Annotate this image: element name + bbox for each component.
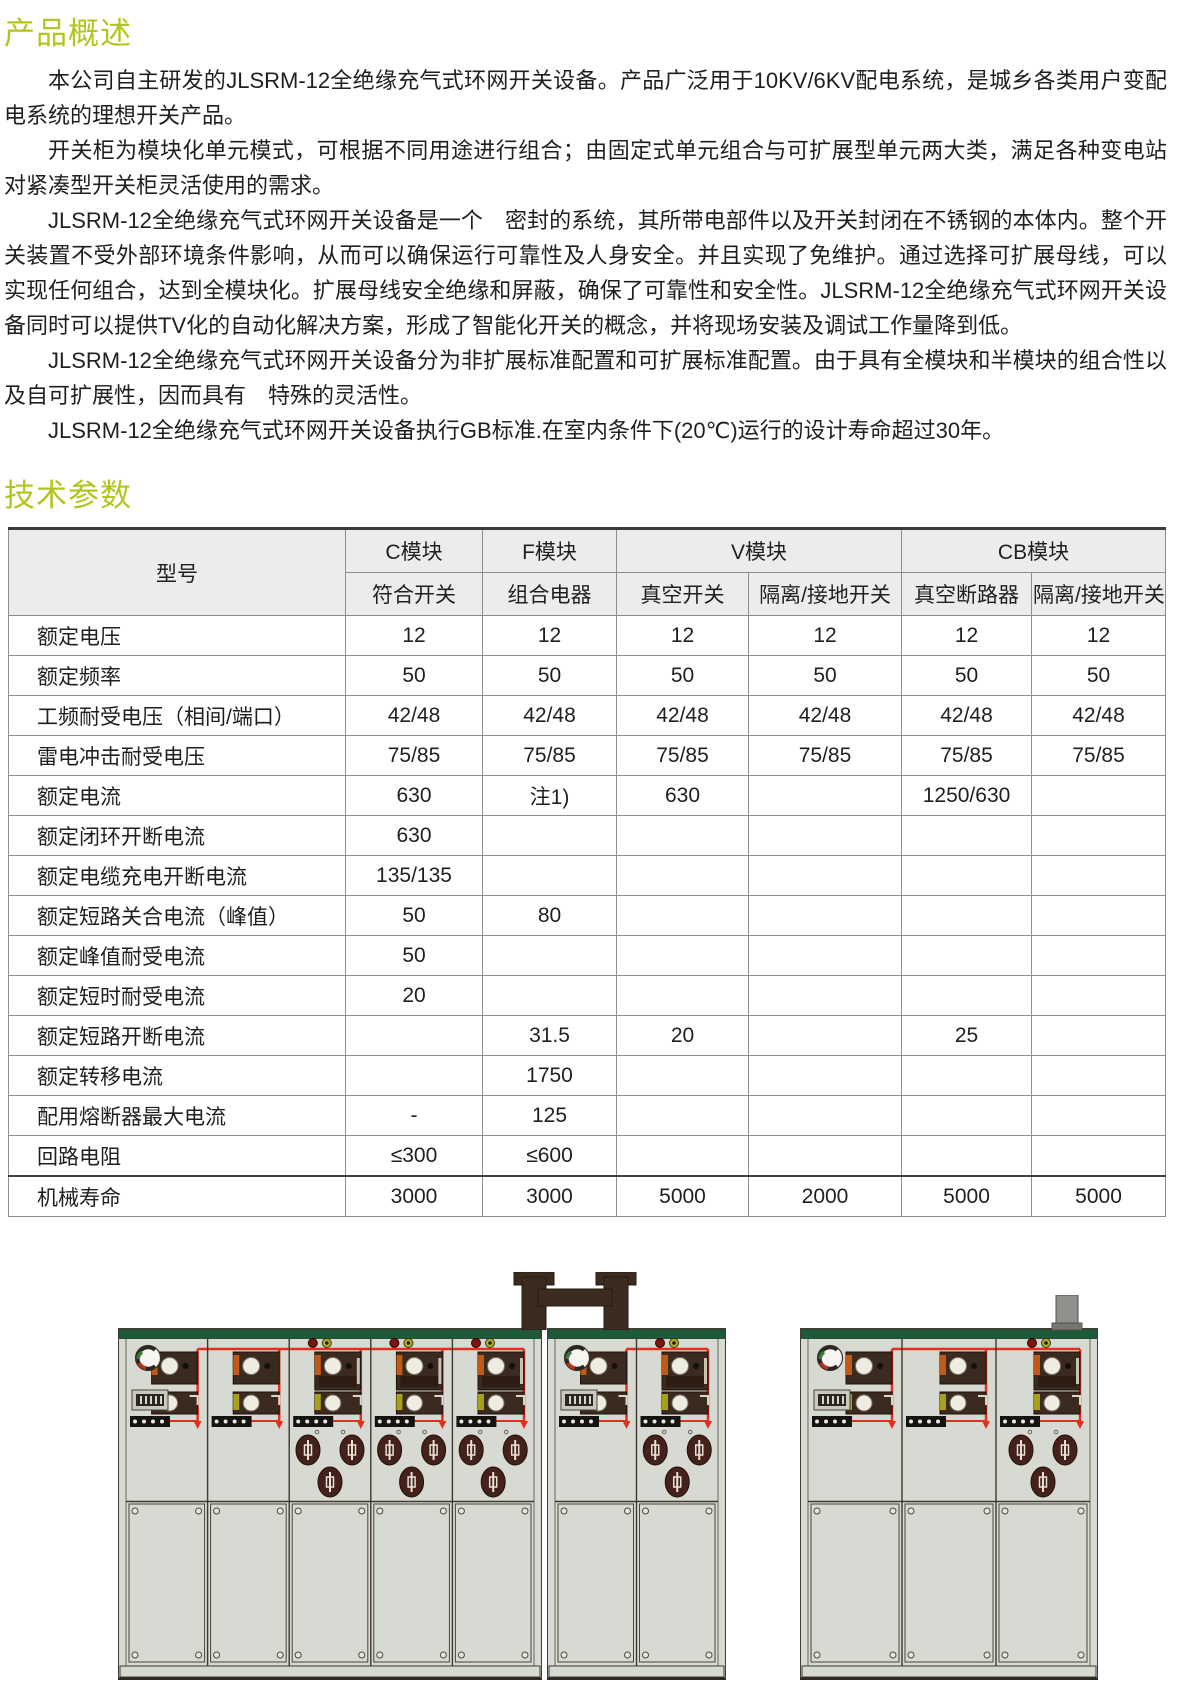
row-value: 50 (902, 656, 1032, 696)
row-label: 机械寿命 (9, 1176, 346, 1217)
row-value: 42/48 (483, 696, 617, 736)
col-subheader: 真空开关 (617, 573, 749, 616)
overview-paragraph: 本公司自主研发的JLSRM-12全绝缘充气式环网开关设备。产品广泛用于10KV/… (4, 63, 1167, 133)
row-value (1032, 1056, 1166, 1096)
params-table-head: 型号 C模块 F模块 V模块 CB模块 符合开关 组合电器 真空开关 隔离/接地… (9, 529, 1166, 616)
row-value: 25 (902, 1016, 1032, 1056)
table-row: 额定电流630注1)6301250/630 (9, 776, 1166, 816)
row-value: 630 (346, 776, 483, 816)
row-value (902, 936, 1032, 976)
row-value (749, 896, 902, 936)
col-header-model: 型号 (9, 529, 346, 616)
row-value: 3000 (346, 1176, 483, 1217)
row-value: 75/85 (902, 736, 1032, 776)
params-table-body: 额定电压121212121212额定频率505050505050工频耐受电压（相… (9, 616, 1166, 1217)
overview-title: 产品概述 (4, 8, 1200, 53)
row-value (483, 856, 617, 896)
row-label: 额定短路开断电流 (9, 1016, 346, 1056)
table-row: 额定短路关合电流（峰值）5080 (9, 896, 1166, 936)
params-title: 技术参数 (4, 470, 1200, 515)
row-value (749, 1096, 902, 1136)
row-value (1032, 1096, 1166, 1136)
row-value (1032, 856, 1166, 896)
col-subheader: 真空断路器 (902, 573, 1032, 616)
row-value (902, 976, 1032, 1016)
row-value: 630 (617, 776, 749, 816)
row-label: 额定闭环开断电流 (9, 816, 346, 856)
row-value: 12 (749, 616, 902, 656)
row-value: 5000 (617, 1176, 749, 1217)
row-value: 12 (483, 616, 617, 656)
row-value: 75/85 (617, 736, 749, 776)
row-value (1032, 936, 1166, 976)
row-value: ≤300 (346, 1136, 483, 1177)
cable-duct (1050, 1295, 1084, 1331)
row-value (749, 1056, 902, 1096)
table-row: 额定频率505050505050 (9, 656, 1166, 696)
row-value (902, 1136, 1032, 1177)
overview-text: 本公司自主研发的JLSRM-12全绝缘充气式环网开关设备。产品广泛用于10KV/… (4, 63, 1167, 448)
col-subheader: 组合电器 (483, 573, 617, 616)
row-value (617, 976, 749, 1016)
row-value: 1250/630 (902, 776, 1032, 816)
row-value (617, 1096, 749, 1136)
row-value (1032, 776, 1166, 816)
row-value (1032, 1016, 1166, 1056)
row-value: 75/85 (483, 736, 617, 776)
table-row: 配用熔断器最大电流-125 (9, 1096, 1166, 1136)
table-row: 额定转移电流1750 (9, 1056, 1166, 1096)
product-figure (0, 1229, 1200, 1701)
col-header-v-module: V模块 (617, 529, 902, 573)
row-value (346, 1056, 483, 1096)
col-header-c-module: C模块 (346, 529, 483, 573)
row-value (749, 776, 902, 816)
table-row: 额定电压121212121212 (9, 616, 1166, 656)
row-value: - (346, 1096, 483, 1136)
table-row: 额定电缆充电开断电流135/135 (9, 856, 1166, 896)
row-value: 12 (902, 616, 1032, 656)
row-value (749, 1136, 902, 1177)
row-value: 42/48 (1032, 696, 1166, 736)
row-value: 12 (1032, 616, 1166, 656)
row-value: 50 (346, 656, 483, 696)
row-label: 配用熔断器最大电流 (9, 1096, 346, 1136)
row-value (902, 1096, 1032, 1136)
overview-paragraph: JLSRM-12全绝缘充气式环网开关设备执行GB标准.在室内条件下(20℃)运行… (4, 413, 1167, 448)
row-value: 42/48 (346, 696, 483, 736)
row-label: 额定电压 (9, 616, 346, 656)
row-value (617, 936, 749, 976)
row-value (749, 856, 902, 896)
row-value (617, 1056, 749, 1096)
table-row: 回路电阻≤300≤600 (9, 1136, 1166, 1177)
row-label: 额定峰值耐受电流 (9, 936, 346, 976)
col-subheader: 符合开关 (346, 573, 483, 616)
row-label: 额定转移电流 (9, 1056, 346, 1096)
row-value: 50 (483, 656, 617, 696)
table-row: 额定短时耐受电流20 (9, 976, 1166, 1016)
row-value: 630 (346, 816, 483, 856)
col-header-cb-module: CB模块 (902, 529, 1166, 573)
row-value: 1750 (483, 1056, 617, 1096)
row-value (902, 896, 1032, 936)
row-value: 42/48 (902, 696, 1032, 736)
row-value: 2000 (749, 1176, 902, 1217)
table-row: 工频耐受电压（相间/端口）42/4842/4842/4842/4842/4842… (9, 696, 1166, 736)
row-value (346, 1016, 483, 1056)
col-subheader: 隔离/接地开关 (749, 573, 902, 616)
row-value: 5000 (902, 1176, 1032, 1217)
row-value: 50 (1032, 656, 1166, 696)
row-value (617, 1136, 749, 1177)
col-subheader: 隔离/接地开关 (1032, 573, 1166, 616)
product-page: 产品概述 本公司自主研发的JLSRM-12全绝缘充气式环网开关设备。产品广泛用于… (0, 8, 1200, 1613)
row-value: 31.5 (483, 1016, 617, 1056)
col-header-f-module: F模块 (483, 529, 617, 573)
row-value (1032, 816, 1166, 856)
row-label: 额定频率 (9, 656, 346, 696)
row-value (749, 976, 902, 1016)
row-value: ≤600 (483, 1136, 617, 1177)
row-value: 5000 (1032, 1176, 1166, 1217)
row-value: 50 (346, 936, 483, 976)
busbar-bridge (512, 1272, 638, 1330)
row-label: 额定电流 (9, 776, 346, 816)
row-value: 50 (346, 896, 483, 936)
row-value: 20 (346, 976, 483, 1016)
overview-paragraph: JLSRM-12全绝缘充气式环网开关设备分为非扩展标准配置和可扩展标准配置。由于… (4, 343, 1167, 413)
row-value (902, 856, 1032, 896)
table-row: 额定峰值耐受电流50 (9, 936, 1166, 976)
table-row: 额定闭环开断电流630 (9, 816, 1166, 856)
row-value (749, 1016, 902, 1056)
row-label: 额定电缆充电开断电流 (9, 856, 346, 896)
row-value (617, 856, 749, 896)
row-value: 75/85 (1032, 736, 1166, 776)
switchgear-cabinet (800, 1328, 1098, 1680)
row-value: 50 (749, 656, 902, 696)
row-value: 注1) (483, 776, 617, 816)
row-value (749, 936, 902, 976)
params-table: 型号 C模块 F模块 V模块 CB模块 符合开关 组合电器 真空开关 隔离/接地… (8, 527, 1166, 1217)
row-value (617, 816, 749, 856)
table-row: 机械寿命300030005000200050005000 (9, 1176, 1166, 1217)
row-label: 额定短路关合电流（峰值） (9, 896, 346, 936)
row-value (902, 816, 1032, 856)
table-row: 雷电冲击耐受电压75/8575/8575/8575/8575/8575/85 (9, 736, 1166, 776)
row-value: 75/85 (749, 736, 902, 776)
row-value: 20 (617, 1016, 749, 1056)
switchgear-cabinet (118, 1328, 542, 1680)
row-value (902, 1056, 1032, 1096)
row-value: 12 (617, 616, 749, 656)
row-value (483, 976, 617, 1016)
table-row: 额定短路开断电流31.52025 (9, 1016, 1166, 1056)
row-label: 回路电阻 (9, 1136, 346, 1177)
row-value (1032, 896, 1166, 936)
overview-paragraph: JLSRM-12全绝缘充气式环网开关设备是一个 密封的系统，其所带电部件以及开关… (4, 203, 1167, 343)
row-value (749, 816, 902, 856)
row-value: 80 (483, 896, 617, 936)
row-value: 3000 (483, 1176, 617, 1217)
row-value (1032, 1136, 1166, 1177)
overview-paragraph: 开关柜为模块化单元模式，可根据不同用途进行组合；由固定式单元组合与可扩展型单元两… (4, 133, 1167, 203)
row-value (1032, 976, 1166, 1016)
row-value: 42/48 (617, 696, 749, 736)
row-value: 42/48 (749, 696, 902, 736)
row-label: 工频耐受电压（相间/端口） (9, 696, 346, 736)
row-label: 雷电冲击耐受电压 (9, 736, 346, 776)
row-value: 125 (483, 1096, 617, 1136)
row-value (617, 896, 749, 936)
row-value: 50 (617, 656, 749, 696)
switchgear-cabinet (547, 1328, 726, 1680)
row-value: 135/135 (346, 856, 483, 896)
row-value (483, 816, 617, 856)
row-value (483, 936, 617, 976)
row-label: 额定短时耐受电流 (9, 976, 346, 1016)
row-value: 75/85 (346, 736, 483, 776)
row-value: 12 (346, 616, 483, 656)
